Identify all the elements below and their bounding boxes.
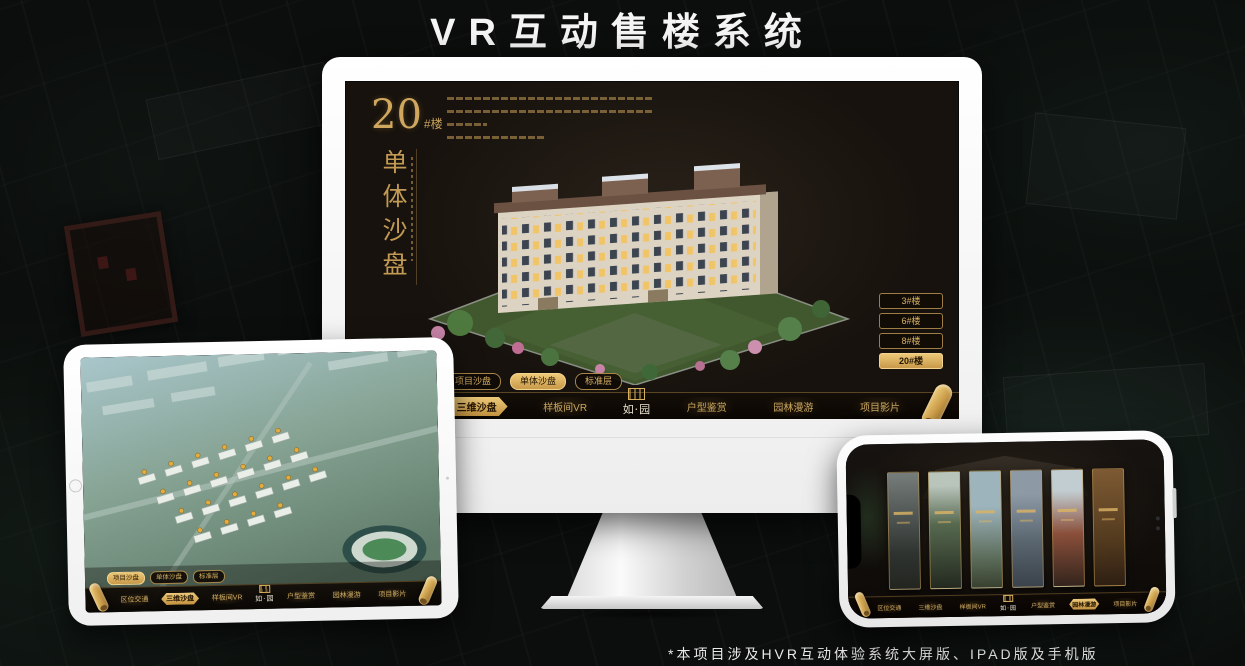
subtab-single-sandbox[interactable]: 单体沙盘: [510, 373, 566, 390]
scene-card[interactable]: [1091, 468, 1125, 587]
tablet-nav-item-garden-roam[interactable]: 园林漫游: [328, 589, 366, 602]
phone-navbar: 区位交通 三维沙盘 样板间VR 如·园 户型鉴赏 园林漫游 项目影片: [848, 591, 1166, 619]
subtab-standard-floor[interactable]: 标准层: [575, 373, 622, 390]
brand-logo: 如·园: [623, 388, 652, 417]
phone-nav-item-floorplan[interactable]: 户型鉴赏: [1028, 599, 1058, 611]
background-city-block: [1026, 112, 1187, 219]
floor-button-6[interactable]: 6#楼: [879, 313, 943, 329]
background-plaque: [64, 211, 178, 337]
brand-seal-icon: [628, 388, 645, 400]
phone-nav-item-model-room-vr[interactable]: 样板间VR: [956, 600, 989, 612]
nav-item-3d-sandbox[interactable]: 三维沙盘: [446, 397, 508, 416]
phone-brand-logo-text: 如·园: [1000, 603, 1017, 612]
building-headline: 20#楼: [371, 95, 443, 135]
poster-stage: VR互动售楼系统 20#楼 单体沙盘: [0, 0, 1245, 666]
phone-side-button: [1172, 488, 1177, 518]
building-number: 20: [371, 92, 422, 138]
tablet-nav-item-location-traffic[interactable]: 区位交通: [115, 593, 153, 606]
tablet-camera-dot: [446, 476, 449, 479]
floor-button-group: 3#楼 6#楼 8#楼 20#楼: [879, 293, 943, 369]
nav-item-project-film[interactable]: 项目影片: [849, 397, 911, 416]
phone-brand-seal-icon: [1003, 595, 1013, 602]
scene-card[interactable]: [1009, 469, 1043, 588]
tablet-sandbox-subtabs: 项目沙盘 单体沙盘 标准层: [107, 570, 225, 585]
scene-gallery: [846, 467, 1166, 591]
tablet-brand-seal-icon: [259, 585, 270, 593]
phone-nav-item-location-traffic[interactable]: 区位交通: [874, 602, 904, 614]
phone-device: 区位交通 三维沙盘 样板间VR 如·园 户型鉴赏 园林漫游 项目影片: [836, 430, 1175, 628]
floor-button-20[interactable]: 20#楼: [879, 353, 943, 369]
phone-brand-logo: 如·园: [1000, 595, 1017, 612]
monitor-stand-foot: [540, 596, 764, 609]
building-3d-render: [400, 133, 870, 385]
floor-button-3[interactable]: 3#楼: [879, 293, 943, 309]
phone-nav-item-project-film[interactable]: 项目影片: [1110, 598, 1140, 610]
nav-item-garden-roam[interactable]: 园林漫游: [762, 397, 824, 416]
scene-card[interactable]: [927, 471, 961, 590]
tablet-brand-logo: 如·园: [255, 585, 275, 604]
nav-item-floorplan[interactable]: 户型鉴赏: [676, 397, 738, 416]
scene-card[interactable]: [886, 472, 920, 591]
phone-nav-item-garden-roam[interactable]: 园林漫游: [1069, 598, 1099, 610]
scene-card[interactable]: [968, 470, 1002, 589]
brand-logo-text: 如·园: [623, 401, 652, 417]
floor-button-8[interactable]: 8#楼: [879, 333, 943, 349]
phone-notch: [846, 495, 861, 569]
tablet-device: 项目沙盘 单体沙盘 标准层 区位交通 三维沙盘 样板间VR 如·园 户型鉴赏 园…: [63, 337, 459, 626]
phone-camera-dot: [1156, 516, 1160, 520]
tablet-brand-logo-text: 如·园: [255, 594, 274, 604]
tablet-nav-item-model-room-vr[interactable]: 样板间VR: [207, 591, 248, 604]
scene-card[interactable]: [1050, 469, 1084, 588]
phone-nav-item-3d-sandbox[interactable]: 三维沙盘: [915, 601, 945, 613]
poster-footnote: *本项目涉及HVR互动体验系统大屏版、IPAD版及手机版: [668, 644, 1099, 664]
tablet-subtab-single-sandbox[interactable]: 单体沙盘: [150, 571, 188, 585]
tablet-nav-item-project-film[interactable]: 项目影片: [373, 588, 411, 601]
tablet-screen: 项目沙盘 单体沙盘 标准层 区位交通 三维沙盘 样板间VR 如·园 户型鉴赏 园…: [80, 350, 441, 612]
tablet-subtab-project-sandbox[interactable]: 项目沙盘: [107, 571, 145, 585]
building-number-suffix: #楼: [424, 117, 443, 131]
phone-screen: 区位交通 三维沙盘 样板间VR 如·园 户型鉴赏 园林漫游 项目影片: [846, 439, 1167, 619]
nav-item-model-room-vr[interactable]: 样板间VR: [532, 397, 598, 416]
tablet-nav-item-floorplan[interactable]: 户型鉴赏: [282, 590, 320, 603]
tablet-home-button[interactable]: [69, 479, 82, 492]
tablet-nav-item-3d-sandbox[interactable]: 三维沙盘: [161, 592, 199, 605]
tablet-subtab-standard-floor[interactable]: 标准层: [193, 570, 225, 584]
sandbox-subtabs: 项目沙盘 单体沙盘 标准层: [445, 373, 622, 390]
poster-title: VR互动售楼系统: [0, 1, 1245, 56]
